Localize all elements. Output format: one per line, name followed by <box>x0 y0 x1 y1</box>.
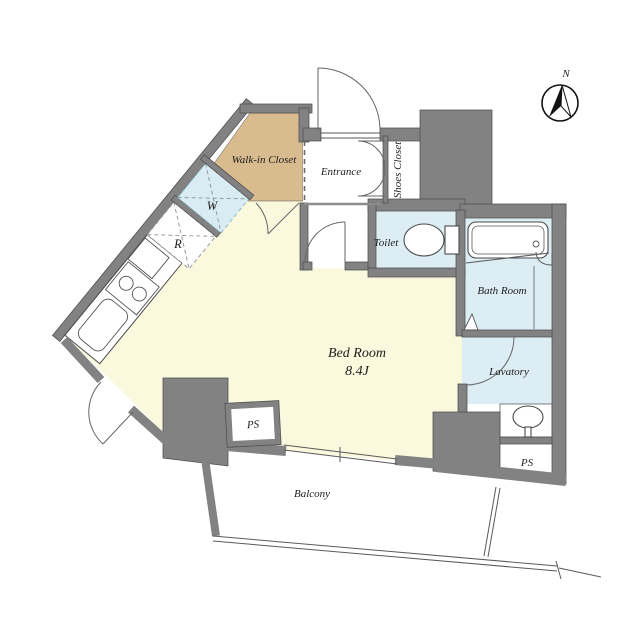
walk-in-closet-label: Walk-in Closet <box>232 154 298 166</box>
washbasin-icon <box>513 406 543 428</box>
floor-plan-drawing: PS N Walk-in Closet Entrance Shoes Close… <box>0 0 640 640</box>
toilet-bowl-icon <box>404 224 444 256</box>
hall-floor <box>305 203 368 265</box>
washer-label: W <box>207 199 219 213</box>
balcony-door-leaf <box>103 412 133 444</box>
balcony-railing-extension <box>559 568 601 577</box>
wall-segment <box>368 199 465 211</box>
balcony-railing <box>213 536 557 566</box>
bath-room-label: Bath Room <box>477 285 526 297</box>
toilet-tank-icon <box>445 226 459 254</box>
wall-balcony-left <box>205 459 216 536</box>
bed-room-size-label: 8.4J <box>345 364 370 379</box>
compass-needle-light-icon <box>561 85 571 117</box>
north-label: N <box>561 68 570 80</box>
balcony-railing-endcap <box>556 561 561 579</box>
balcony-door-swing <box>89 382 103 444</box>
wall-segment <box>460 204 566 218</box>
ps-left-label: PS <box>246 419 260 432</box>
entrance-label: Entrance <box>320 166 361 178</box>
pillar-bottom-left <box>163 378 228 466</box>
washbasin-tap-icon <box>525 427 531 437</box>
lavatory-label: Lavatory <box>488 366 529 378</box>
balcony-railing <box>213 541 557 571</box>
north-compass: N <box>542 68 578 121</box>
wall-segment <box>300 203 308 270</box>
wall-segment <box>345 262 370 270</box>
ps-left-box: PS <box>225 401 281 448</box>
wall-segment <box>368 203 376 268</box>
refrigerator-label: R <box>173 237 182 251</box>
floor-plan-page: PS N Walk-in Closet Entrance Shoes Close… <box>0 0 640 640</box>
bed-room-label: Bed Room <box>328 346 386 361</box>
wall-segment <box>303 262 312 270</box>
balcony-label: Balcony <box>294 488 330 500</box>
wall-segment <box>368 268 465 277</box>
wall-segment <box>552 204 566 484</box>
utility-shaft <box>420 110 492 210</box>
wall-segment <box>395 460 440 464</box>
shoes-closet-label: Shoes Closet <box>392 141 404 198</box>
compass-needle-dark-icon <box>549 85 562 117</box>
entrance-door-swing <box>318 68 380 130</box>
wall-segment <box>496 437 552 444</box>
ps-right-label: PS <box>520 457 534 469</box>
toilet-label: Toilet <box>374 237 400 249</box>
wall-segment <box>462 330 552 337</box>
